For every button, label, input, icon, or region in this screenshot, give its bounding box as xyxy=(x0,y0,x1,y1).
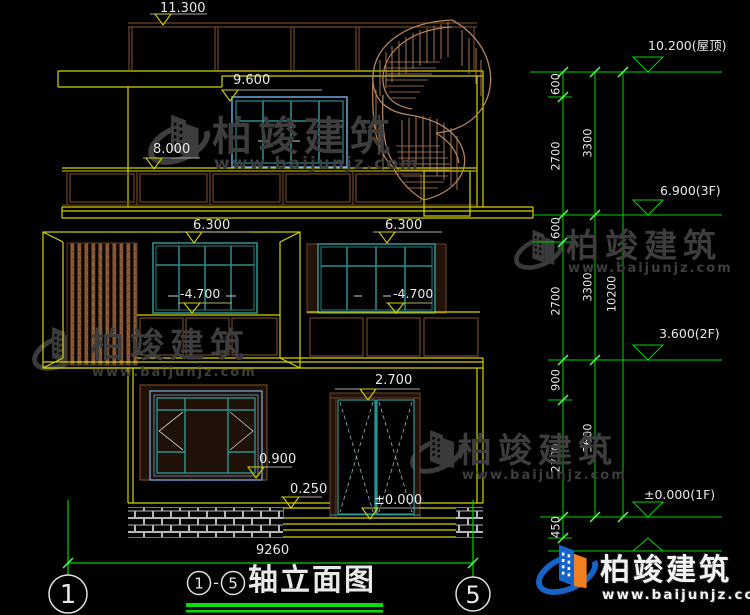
watermark-brand-left: 柏竣建筑 xyxy=(90,329,250,363)
watermark-site-right: www.baijunjz.com xyxy=(568,262,733,275)
title-dash: - xyxy=(213,575,219,591)
title-circle-1: 1 xyxy=(194,577,204,592)
watermark-site-top: www.baijunjz.com xyxy=(214,156,420,173)
brand-logo-site: www.baijunjz.com xyxy=(602,589,750,603)
elev-11300: 11.300 xyxy=(160,2,206,15)
watermark-site-left: www.baijunjz.com xyxy=(92,366,257,379)
elev-6300-right: 6.300 xyxy=(385,219,422,232)
watermark-brand-right: 柏竣建筑 xyxy=(566,229,722,262)
dim-2700-a: 2700 xyxy=(550,141,562,170)
elev-0900: 0.900 xyxy=(259,453,296,466)
level-1f: ±0.000(1F) xyxy=(644,489,715,502)
elev-2700: 2.700 xyxy=(375,374,412,387)
dim-900: 900 xyxy=(550,369,562,391)
elev-8000: 8.000 xyxy=(153,143,190,156)
dim-600-a: 600 xyxy=(550,73,562,95)
floor2-right-railing xyxy=(307,312,480,356)
brick-base xyxy=(128,508,483,537)
elev-4700-left: -4.700 xyxy=(180,288,220,301)
floor3-balcony-railing xyxy=(62,168,477,216)
level-2f: 3.600(2F) xyxy=(659,328,720,341)
elev-0250: 0.250 xyxy=(290,483,327,496)
axis-bubble-1: 1 xyxy=(60,582,77,608)
dim-3300-b: 3300 xyxy=(582,272,594,301)
dim-3300-a: 3300 xyxy=(582,128,594,157)
dim-9260: 9260 xyxy=(256,544,289,557)
dim-600-b: 600 xyxy=(550,217,562,239)
level-roof: 10.200(屋顶) xyxy=(648,40,727,53)
brand-logo-color xyxy=(533,545,600,600)
elev-4700-right: -4.700 xyxy=(393,288,433,301)
drawing-canvas xyxy=(0,0,750,615)
elev-6300-left: 6.300 xyxy=(193,219,230,232)
title-circle-5: 5 xyxy=(228,577,238,592)
watermark-brand-mid: 柏竣建筑 xyxy=(458,434,618,468)
watermark-site-mid: www.baijunjz.com xyxy=(462,469,627,482)
elev-9600: 9.600 xyxy=(233,74,270,87)
watermark-brand-top: 柏竣建筑 xyxy=(212,117,396,157)
roof-parapet-railing xyxy=(128,23,477,70)
elev-0000: ±0.000 xyxy=(374,494,422,507)
axis-bubble-5: 5 xyxy=(465,583,480,607)
level-3f: 6.900(3F) xyxy=(660,185,721,198)
cad-elevation-drawing: 11.300 9.600 8.000 6.300 6.300 -4.700 -4… xyxy=(0,0,750,615)
dim-450: 450 xyxy=(550,516,562,538)
dim-2700-b: 2700 xyxy=(550,286,562,315)
floor1-window xyxy=(140,385,267,480)
dim-10200: 10200 xyxy=(606,276,618,313)
brand-logo-name: 柏竣建筑 xyxy=(600,556,732,586)
roof-slab xyxy=(58,71,483,87)
drawing-title: 轴立面图 xyxy=(248,566,376,596)
